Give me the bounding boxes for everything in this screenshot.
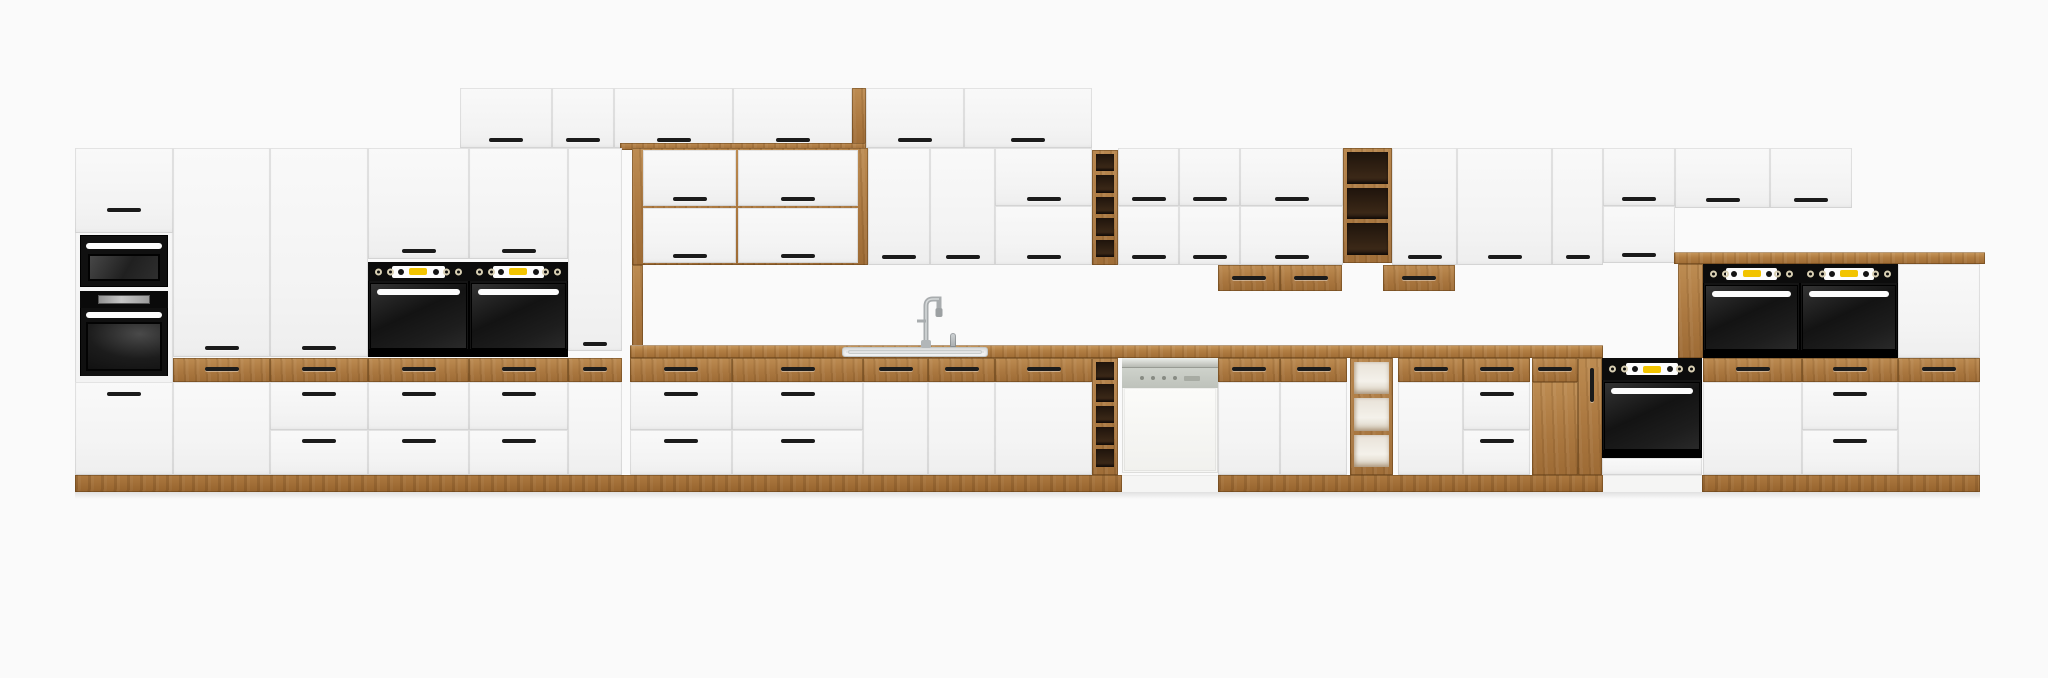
cabinet-handle	[1590, 368, 1594, 402]
base-drawer-469b	[469, 430, 568, 475]
soap-dispenser	[950, 333, 956, 347]
cabinet-handle	[1922, 367, 1956, 371]
wall-top-oak-edge	[852, 88, 866, 150]
cabinet-handle	[882, 255, 916, 259]
oven-base-white-strip	[1602, 458, 1702, 475]
cabinet-handle	[107, 208, 141, 212]
cabinet-handle	[1232, 367, 1266, 371]
oak-drawer-270	[270, 358, 368, 382]
undercab-oak-drawer-3	[1383, 265, 1455, 291]
cabinet-handle	[583, 367, 607, 371]
cabinet-handle	[1193, 197, 1227, 201]
base-drawer-630b	[630, 430, 732, 475]
cabinet-handle	[1736, 367, 1770, 371]
cabinet-handle	[107, 392, 141, 396]
base-drawer-270b	[270, 430, 368, 475]
cabinet-handle	[489, 138, 523, 142]
open-shelf-compartment	[1096, 362, 1114, 380]
base-door-995	[995, 382, 1092, 475]
base-door-1898	[1898, 382, 1980, 475]
cabinet-handle	[302, 392, 336, 396]
tall-door-narrow	[568, 148, 622, 351]
oven-door	[1705, 285, 1798, 350]
oak-drawer-928	[928, 358, 995, 382]
oven-control-panel	[1703, 264, 1800, 283]
cabinet-handle	[402, 392, 436, 396]
wall-door-a	[868, 148, 930, 265]
cabinet-handle	[673, 254, 707, 258]
oak-drawer-1398	[1398, 358, 1463, 382]
cabinet-handle	[1794, 198, 1828, 202]
base-drawer-368b	[368, 430, 469, 475]
oven-display	[1824, 268, 1875, 280]
wall-top-door-6	[964, 88, 1092, 148]
cabinet-handle	[664, 367, 698, 371]
cabinet-handle	[1538, 367, 1572, 371]
cabinet-handle	[1566, 255, 1590, 259]
open-shelf-compartment	[1354, 398, 1389, 430]
base-door-568	[568, 382, 622, 475]
wall-top-door-1	[460, 88, 552, 148]
cabinet-handle	[781, 254, 815, 258]
cabinet-handle	[205, 346, 239, 350]
tall-left-base-door	[75, 382, 173, 475]
open-shelf-compartment	[1096, 175, 1114, 192]
plinth-right	[1702, 475, 1980, 492]
oak-drawer-1280	[1280, 358, 1347, 382]
base-drawer-1802b	[1802, 430, 1898, 475]
sink-base-door-2	[928, 382, 995, 475]
wall-flap-d1	[1118, 148, 1179, 206]
cabinet-handle	[402, 367, 436, 371]
microwave-door	[88, 254, 160, 281]
dishwasher-control-panel	[1122, 368, 1218, 388]
undercab-oak-drawer-1	[1218, 265, 1280, 291]
wine-rack-wall	[1092, 150, 1118, 265]
cabinet-handle	[879, 367, 913, 371]
microwave	[80, 235, 168, 287]
oak-drawer-173	[173, 358, 270, 382]
hutch-flap-2	[738, 150, 858, 206]
oak-drawer-1802	[1802, 358, 1898, 382]
oak-drawer-630	[630, 358, 732, 382]
base-drawer-630a	[630, 382, 732, 430]
wine-rack-base	[1092, 358, 1118, 475]
wall-door-b	[930, 148, 995, 265]
cabinet-handle	[1414, 367, 1448, 371]
cabinet-handle	[664, 392, 698, 396]
cabinet-handle	[776, 138, 810, 142]
cabinet-handle	[1622, 253, 1656, 257]
wall-door-k	[1675, 148, 1770, 208]
oven-door	[1604, 382, 1700, 450]
wall-flap-j2	[1603, 206, 1675, 263]
cabinet-handle	[502, 439, 536, 443]
oak-drawer-1898	[1898, 358, 1980, 382]
cabinet-handle	[402, 249, 436, 253]
oak-drawer-368	[368, 358, 469, 382]
base-door-1398	[1398, 382, 1463, 475]
open-shelf-base	[1350, 358, 1393, 475]
cabinet-handle	[1488, 255, 1522, 259]
open-shelf-wall	[1343, 148, 1392, 263]
cabinet-handle	[1706, 198, 1740, 202]
oak-drawer-1703	[1703, 358, 1802, 382]
wall-top-door-3	[614, 88, 733, 148]
cabinet-handle	[1833, 367, 1867, 371]
wall-top-door-5	[866, 88, 964, 148]
built-in-oven-base	[1602, 358, 1702, 458]
open-shelf-compartment	[1096, 449, 1114, 467]
cabinet-handle	[1833, 439, 1867, 443]
cabinet-handle	[1011, 138, 1045, 142]
open-shelf-compartment	[1096, 240, 1114, 257]
oak-drawer-863	[863, 358, 928, 382]
base-door-173	[173, 382, 270, 475]
wall-door-l	[1770, 148, 1852, 208]
sideboard-white-door	[1898, 264, 1980, 358]
base-drawer-1802a	[1802, 382, 1898, 430]
hutch-flap-1	[643, 150, 736, 206]
base-drawer-732b	[732, 430, 863, 475]
cabinet-handle	[1232, 276, 1266, 280]
oven-display	[493, 266, 544, 278]
open-shelf-compartment	[1096, 427, 1114, 445]
built-in-oven-1	[368, 262, 469, 357]
hutch-flap-3	[643, 208, 736, 263]
cabinet-handle	[673, 197, 707, 201]
cabinet-handle	[502, 367, 536, 371]
hutch-flap-4	[738, 208, 858, 263]
base-drawer-1463b	[1463, 430, 1530, 475]
open-shelf-compartment	[1347, 152, 1388, 184]
cabinet-handle	[1027, 255, 1061, 259]
oak-drawer-995	[995, 358, 1092, 382]
dishwasher-top-strip	[1122, 358, 1218, 368]
open-shelf-compartment	[1347, 223, 1388, 255]
cabinet-handle	[946, 255, 980, 259]
cabinet-handle	[945, 367, 979, 371]
cabinet-handle	[1480, 392, 1514, 396]
undercab-oak-drawer-2	[1280, 265, 1342, 291]
kitchen-product-image	[0, 0, 2048, 678]
wall-flap-j1	[1603, 148, 1675, 206]
cabinet-handle	[205, 367, 239, 371]
base-door-1218	[1218, 382, 1280, 475]
tall-left-top-door	[75, 148, 173, 233]
cabinet-handle	[502, 249, 536, 253]
cabinet-handle	[1027, 197, 1061, 201]
cabinet-handle	[1275, 255, 1309, 259]
oak-drawer-1218	[1218, 358, 1280, 382]
cabinet-handle	[1132, 197, 1166, 201]
cabinet-handle	[898, 138, 932, 142]
dishwasher	[1122, 358, 1218, 473]
oak-drawer-568	[568, 358, 622, 382]
oven-control-panel	[1800, 264, 1898, 283]
cabinet-handle	[1402, 276, 1436, 280]
cabinet-handle	[781, 392, 815, 396]
wall-top-door-2	[552, 88, 614, 148]
built-in-oven-3	[1703, 264, 1800, 358]
hutch-side-stile	[632, 265, 643, 352]
wall-flap-f2	[1240, 206, 1343, 265]
cabinet-handle	[1480, 439, 1514, 443]
cabinet-handle	[657, 138, 691, 142]
wall-door-i	[1552, 148, 1603, 265]
plinth-oven	[1603, 475, 1702, 492]
wall-flap-c2	[995, 206, 1092, 265]
cabinet-handle	[402, 439, 436, 443]
cabinet-handle	[664, 439, 698, 443]
oven-column-door-2	[469, 148, 568, 259]
base-drawer-1463a	[1463, 382, 1530, 430]
cabinet-handle	[502, 392, 536, 396]
cabinet-handle	[781, 367, 815, 371]
base-drawer-732a	[732, 382, 863, 430]
oven-control-panel	[368, 262, 469, 281]
wall-door-h	[1457, 148, 1552, 265]
open-shelf-compartment	[1096, 384, 1114, 402]
oven-control-panel	[1602, 358, 1702, 380]
oak-drawer-469	[469, 358, 568, 382]
wall-flap-e1	[1179, 148, 1240, 206]
cabinet-handle	[302, 367, 336, 371]
sink-base-door-1	[863, 382, 928, 475]
wall-flap-d2	[1118, 206, 1179, 265]
cabinet-handle	[302, 439, 336, 443]
oven-column-door-1	[368, 148, 469, 259]
cabinet-handle	[781, 197, 815, 201]
oven-control-panel	[469, 262, 568, 281]
oak-drawer-732	[732, 358, 863, 382]
open-shelf-compartment	[1347, 188, 1388, 220]
plinth-left	[75, 475, 1122, 492]
cabinet-handle	[1294, 276, 1328, 280]
cabinet-handle	[583, 342, 607, 346]
cabinet-handle	[302, 346, 336, 350]
base-door-1280	[1280, 382, 1347, 475]
cabinet-handle	[1027, 367, 1061, 371]
faucet	[904, 288, 952, 348]
pantry-door-2	[270, 148, 368, 357]
floor-shadow	[75, 492, 1980, 499]
oak-base-door-1578	[1578, 358, 1602, 475]
base-drawer-270a	[270, 382, 368, 430]
wall-door-g	[1392, 148, 1457, 265]
cabinet-handle	[781, 439, 815, 443]
base-drawer-469a	[469, 382, 568, 430]
built-in-oven-4	[1800, 264, 1898, 358]
cabinet-handle	[1408, 255, 1442, 259]
oven-left-column	[80, 291, 168, 380]
wall-flap-c1	[995, 148, 1092, 206]
open-shelf-compartment	[1096, 406, 1114, 424]
cabinet-handle	[1297, 367, 1331, 371]
plinth-mid	[1218, 475, 1603, 492]
wall-flap-f1	[1240, 148, 1343, 206]
cabinet-handle	[1622, 197, 1656, 201]
open-shelf-compartment	[1354, 435, 1389, 467]
oven-display	[1726, 268, 1776, 280]
cabinet-handle	[1480, 367, 1514, 371]
oven-lcd-panel	[80, 291, 168, 308]
plinth-dishwasher	[1122, 475, 1218, 492]
oak-base-door-1532	[1532, 382, 1578, 475]
worktop	[630, 345, 1603, 358]
oak-drawer-1532	[1532, 358, 1578, 382]
oven-display	[392, 266, 445, 278]
oven-door	[471, 283, 566, 349]
oak-drawer-1463	[1463, 358, 1530, 382]
cabinet-handle	[1132, 255, 1166, 259]
base-drawer-368a	[368, 382, 469, 430]
cabinet-handle	[1193, 255, 1227, 259]
dishwasher-door	[1124, 388, 1216, 471]
open-shelf-compartment	[1096, 197, 1114, 214]
base-door-1703	[1703, 382, 1802, 475]
oven-display	[1626, 363, 1678, 375]
open-shelf-compartment	[1096, 218, 1114, 235]
sideboard-oak-top	[1674, 252, 1985, 264]
sink-basin	[842, 347, 988, 357]
oven-door	[370, 283, 467, 349]
cabinet-handle	[566, 138, 600, 142]
wall-top-door-4	[733, 88, 852, 148]
cabinet-handle	[1275, 197, 1309, 201]
sideboard-oak-stile	[1678, 264, 1703, 358]
built-in-oven-2	[469, 262, 568, 357]
oven-door	[1802, 285, 1896, 350]
pantry-door-1	[173, 148, 270, 357]
open-shelf-compartment	[1354, 362, 1389, 394]
wall-flap-e2	[1179, 206, 1240, 265]
oven-door	[86, 322, 162, 371]
open-shelf-compartment	[1096, 154, 1114, 171]
cabinet-handle	[1833, 392, 1867, 396]
